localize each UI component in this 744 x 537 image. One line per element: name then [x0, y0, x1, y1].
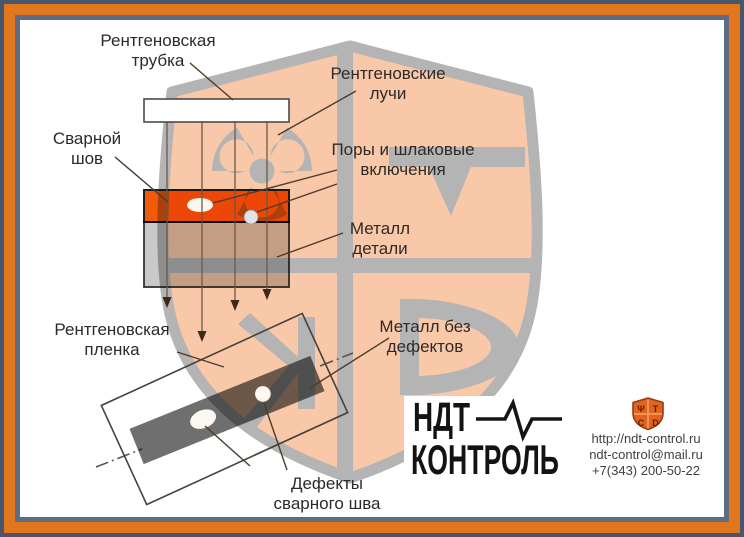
- label-line: пленка: [84, 340, 139, 359]
- ndt-shield-icon: Ψ Т С D: [633, 398, 663, 430]
- label-xray-film: Рентгеновская пленка: [37, 320, 187, 360]
- icon-glyph-tr: Т: [653, 404, 659, 414]
- label-line: включения: [360, 160, 445, 179]
- icon-glyph-br: D: [652, 418, 659, 428]
- label-weld-seam: Сварной шов: [28, 129, 146, 169]
- label-line: лучи: [370, 84, 407, 103]
- logo-text-kontrol: КОНТРОЛЬ: [411, 438, 559, 482]
- label-line: Рентгеновская: [100, 31, 215, 50]
- pointer-defects-1: [205, 426, 250, 466]
- label-metal-no-defects: Металл без дефектов: [368, 317, 482, 357]
- label-line: трубка: [132, 51, 185, 70]
- logo-text-ndt: НДТ: [413, 396, 470, 439]
- label-line: Поры и шлаковые: [331, 140, 474, 159]
- pore-ellipse: [187, 198, 213, 212]
- label-line: Металл: [350, 219, 410, 238]
- label-line: сварного шва: [273, 494, 380, 513]
- label-line: Дефекты: [291, 474, 363, 493]
- icon-glyph-tl: Ψ: [637, 404, 644, 414]
- label-line: Металл без: [379, 317, 470, 336]
- label-weld-defects: Дефекты сварного шва: [244, 474, 410, 514]
- promo-diagram-page: Ψ Т С D Рентгеновская трубка Рентгеновск…: [0, 0, 744, 537]
- label-line: Рентгеновские: [330, 64, 445, 83]
- label-xray-tube: Рентгеновская трубка: [78, 31, 238, 71]
- label-line: шов: [71, 149, 103, 168]
- label-line: дефектов: [387, 337, 464, 356]
- email-text: ndt-control@mail.ru: [580, 447, 712, 463]
- contact-block: http://ndt-control.ru ndt-control@mail.r…: [580, 431, 712, 479]
- xray-tube: [144, 99, 289, 122]
- label-xray-rays: Рентгеновские лучи: [318, 64, 458, 104]
- label-metal-part: Металл детали: [316, 219, 444, 259]
- website-text: http://ndt-control.ru: [580, 431, 712, 447]
- icon-glyph-bl: С: [638, 418, 645, 428]
- label-line: Сварной: [53, 129, 121, 148]
- label-line: Рентгеновская: [54, 320, 169, 339]
- label-pores-inclusions: Поры и шлаковые включения: [320, 140, 486, 180]
- slag-inclusion-circle: [244, 210, 258, 224]
- phone-text: +7(343) 200-50-22: [580, 463, 712, 479]
- label-line: детали: [352, 239, 407, 258]
